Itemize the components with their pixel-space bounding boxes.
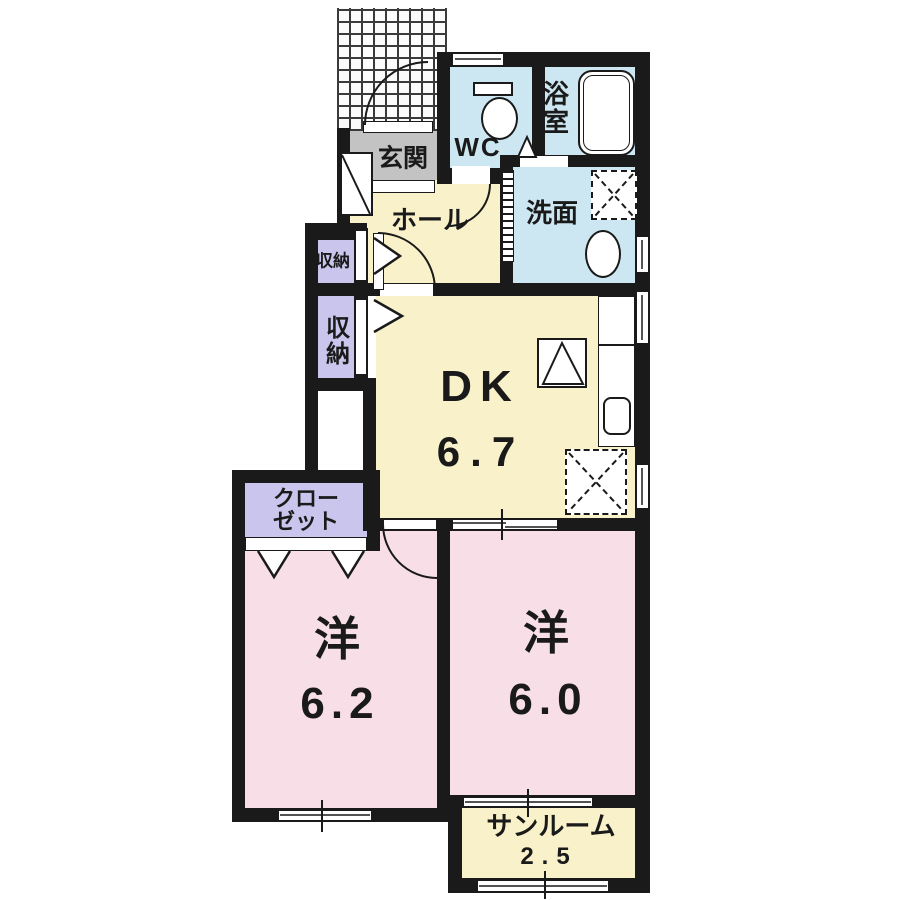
wc-label: WC [454,134,501,160]
bath-door-opening [520,156,568,167]
entrance-porch-tiles [337,8,447,131]
dk-label: DK [440,365,520,409]
entrance-door-leaf [363,121,433,133]
washroom-label: 洗面 [526,200,578,226]
storage-upper-label: 収納 [316,253,350,270]
hall-dk-door-leaf [373,233,384,290]
storage-lower-door [356,300,366,374]
window-west-left [278,810,372,821]
entrance-label: 玄関 [378,147,428,172]
kitchen-counter-divider [598,344,635,346]
window-tick [321,800,323,832]
closet-label-line1: クロー [273,488,339,510]
toilet-tank-icon [473,82,513,96]
vanity-sink-icon [585,230,621,278]
sliding-door-dk [452,519,558,530]
window-right-kitchen [637,292,648,343]
appliance-space-icon [565,449,627,515]
bath-label: 浴室 [543,80,570,136]
western-right-size: 6.0 [508,678,587,722]
wall-closet-top [232,470,380,483]
wall-storage-bottom [305,378,376,391]
kitchen-sink-icon [603,397,631,435]
washer-space-icon [591,170,637,220]
sunroom-label: サンルーム [486,813,615,839]
storage-upper-door [356,231,366,280]
closet-folding-door [245,537,367,551]
wall-dk-left [363,378,376,518]
window-sunroom-bottom [477,880,609,892]
stove-icon [537,338,587,388]
dk-size-label: 6.7 [437,431,525,473]
western-room-right [450,531,635,795]
wc-door-opening [452,166,490,184]
floor-plan: 玄関 WC 浴室 洗面 ホール 収納 収納 DK 6.7 クロー ゼット 洋 6… [0,0,900,900]
shoe-cabinet [340,152,373,216]
western-right-label: 洋 [523,610,569,656]
closet-label-line2: ゼット [273,511,339,533]
storage-lower-label: 収納 [326,316,351,368]
hall-dk-door-opening [380,284,433,296]
window-right-dk [637,465,648,508]
wall-hall-dk [305,283,650,296]
wall-left-lower [232,470,245,822]
wall-wc-left [437,52,450,184]
western-left-size: 6.2 [300,682,379,726]
accordion-door [502,170,514,262]
dk-room-door-leaf [383,519,437,530]
sunroom-size: 2.5 [520,845,577,869]
western-left-label: 洋 [314,616,360,662]
window-tick [544,871,546,899]
window-tick [501,509,503,540]
hall-label: ホール [391,207,469,233]
bathtub-icon [578,70,635,156]
wall-between-western-rooms [437,518,450,822]
window-wc-top [453,54,503,65]
western-room-left [245,531,437,808]
window-right-washroom [637,237,648,272]
